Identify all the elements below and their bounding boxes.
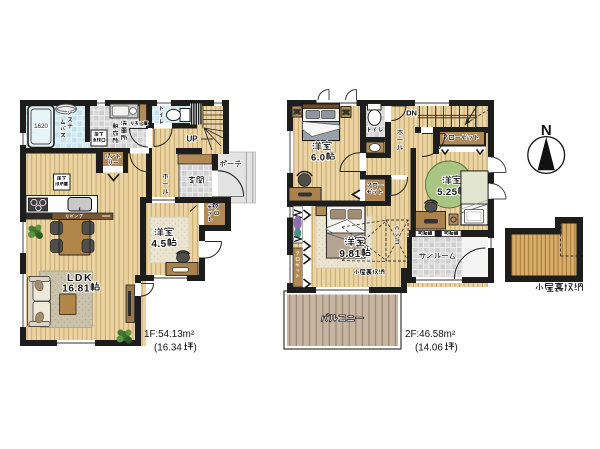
svg-text:5: 5 bbox=[161, 239, 167, 250]
svg-text:1F:54.13m²: 1F:54.13m² bbox=[144, 329, 195, 340]
svg-text:DN: DN bbox=[406, 109, 417, 118]
svg-text:): ) bbox=[194, 343, 197, 354]
svg-text:0: 0 bbox=[320, 153, 325, 164]
svg-text:(14.06: (14.06 bbox=[415, 343, 443, 354]
svg-text:(16.34: (16.34 bbox=[154, 343, 182, 354]
svg-text:8: 8 bbox=[349, 249, 355, 260]
svg-text:5: 5 bbox=[452, 187, 458, 198]
svg-text:): ) bbox=[455, 343, 458, 354]
svg-text:8: 8 bbox=[78, 284, 84, 295]
svg-text:LDK: LDK bbox=[67, 272, 93, 284]
svg-text:6: 6 bbox=[311, 153, 316, 164]
svg-text:2F:46.58m²: 2F:46.58m² bbox=[405, 329, 456, 340]
svg-text:1620: 1620 bbox=[34, 123, 48, 130]
svg-text:2: 2 bbox=[446, 187, 451, 198]
svg-text:1: 1 bbox=[355, 249, 361, 260]
svg-text:UP: UP bbox=[186, 135, 198, 144]
svg-text:1: 1 bbox=[84, 284, 90, 295]
svg-text:1: 1 bbox=[62, 284, 68, 295]
